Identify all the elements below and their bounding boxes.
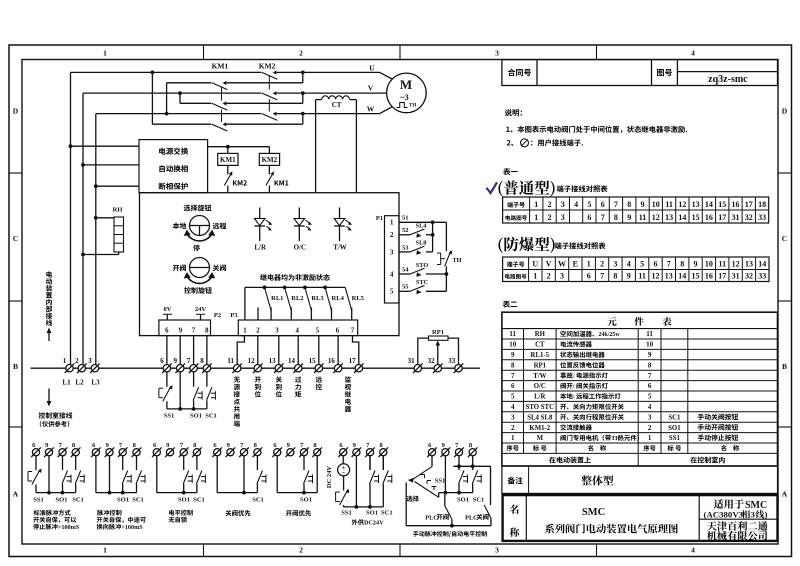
svg-text:12: 12 xyxy=(652,213,660,222)
svg-text:2: 2 xyxy=(299,545,303,554)
svg-text:2: 2 xyxy=(648,424,652,432)
svg-text:L/R: L/R xyxy=(254,244,267,252)
svg-text:52: 52 xyxy=(402,227,409,234)
svg-text:11: 11 xyxy=(227,357,234,365)
svg-text:W: W xyxy=(367,104,375,113)
svg-text:SC1: SC1 xyxy=(473,497,485,504)
svg-text:7: 7 xyxy=(600,272,604,281)
svg-text:D: D xyxy=(782,107,788,116)
svg-text:RL1-5: RL1-5 xyxy=(531,352,550,359)
svg-text:STO: STO xyxy=(416,262,428,269)
svg-text:6: 6 xyxy=(336,327,340,334)
svg-text:10: 10 xyxy=(509,341,517,349)
svg-text:4: 4 xyxy=(648,403,652,411)
svg-text:M: M xyxy=(537,435,544,442)
svg-text:3: 3 xyxy=(275,327,279,334)
svg-text:SO1: SO1 xyxy=(178,497,190,504)
svg-text:3: 3 xyxy=(495,49,499,58)
svg-text:SC1: SC1 xyxy=(668,414,681,421)
svg-text:9: 9 xyxy=(511,351,515,359)
svg-text:SC1: SC1 xyxy=(381,510,393,517)
svg-text:DC24V: DC24V xyxy=(364,520,384,527)
svg-text:KM1: KM1 xyxy=(220,156,236,164)
svg-text:9: 9 xyxy=(694,260,698,269)
svg-text:16: 16 xyxy=(705,272,713,281)
svg-text:9: 9 xyxy=(179,327,183,334)
svg-text:(AC380V3: (AC380V3 xyxy=(704,510,744,520)
svg-text:6: 6 xyxy=(165,327,169,334)
svg-text:SL4 SL8: SL4 SL8 xyxy=(527,414,553,421)
svg-text:5: 5 xyxy=(640,260,644,269)
svg-text:14: 14 xyxy=(705,200,713,209)
svg-text:7: 7 xyxy=(614,200,618,209)
svg-text:M: M xyxy=(400,77,412,92)
svg-text:KM2: KM2 xyxy=(259,62,276,71)
svg-text:E: E xyxy=(573,260,578,269)
svg-text:SO1: SO1 xyxy=(366,510,378,517)
svg-text:2: 2 xyxy=(299,49,303,58)
svg-text:14: 14 xyxy=(758,260,766,269)
svg-text:32: 32 xyxy=(745,272,753,281)
svg-text:15: 15 xyxy=(309,357,317,365)
svg-text:24V: 24V xyxy=(195,306,207,313)
svg-text:4: 4 xyxy=(691,49,695,58)
svg-text:W: W xyxy=(558,260,566,269)
svg-text:7: 7 xyxy=(667,260,671,269)
svg-text:9: 9 xyxy=(641,200,645,209)
svg-text:11: 11 xyxy=(646,330,653,338)
svg-text:32: 32 xyxy=(745,213,753,222)
svg-text:O/C: O/C xyxy=(534,383,546,390)
svg-text:5: 5 xyxy=(390,289,394,296)
svg-text:TH: TH xyxy=(409,104,416,109)
svg-text:1: 1 xyxy=(511,434,515,442)
svg-text:9: 9 xyxy=(627,272,631,281)
svg-text:3: 3 xyxy=(561,213,565,222)
svg-text:17: 17 xyxy=(349,357,357,365)
svg-text:RP1: RP1 xyxy=(534,362,547,369)
svg-text:KM1-2: KM1-2 xyxy=(529,425,550,432)
svg-text:4: 4 xyxy=(390,271,394,278)
svg-text:/: / xyxy=(572,395,575,401)
svg-text:SO1: SO1 xyxy=(300,497,312,504)
svg-text:13: 13 xyxy=(665,213,673,222)
svg-text:8: 8 xyxy=(648,361,652,369)
svg-text:11: 11 xyxy=(638,272,646,281)
svg-text:0V: 0V xyxy=(164,306,172,313)
svg-text:RH: RH xyxy=(535,331,546,338)
svg-text:-: - xyxy=(342,468,345,477)
svg-text:SS1: SS1 xyxy=(33,497,43,504)
svg-text:RL1: RL1 xyxy=(271,295,283,302)
svg-text:B: B xyxy=(782,362,787,371)
svg-text:11: 11 xyxy=(639,213,647,222)
svg-text:7: 7 xyxy=(351,327,355,334)
svg-text:31: 31 xyxy=(408,357,416,365)
svg-text:KM2: KM2 xyxy=(262,156,278,164)
svg-text:A: A xyxy=(13,490,19,499)
svg-text:RL5: RL5 xyxy=(352,295,365,302)
svg-text:4: 4 xyxy=(627,260,631,269)
svg-text:P3: P3 xyxy=(230,312,238,319)
svg-text:SS1: SS1 xyxy=(341,510,351,517)
svg-text:1: 1 xyxy=(534,200,538,209)
svg-text:53: 53 xyxy=(402,244,409,251)
svg-text:32: 32 xyxy=(428,357,436,365)
svg-text:RH: RH xyxy=(113,207,123,214)
svg-text:14: 14 xyxy=(288,357,296,365)
svg-text:RL4: RL4 xyxy=(332,295,345,302)
svg-text:2: 2 xyxy=(390,232,394,239)
svg-text:6: 6 xyxy=(601,200,605,209)
svg-text:3: 3 xyxy=(560,272,564,281)
svg-text:C: C xyxy=(13,234,18,243)
svg-text:8: 8 xyxy=(200,357,204,365)
svg-text:8: 8 xyxy=(627,200,631,209)
svg-text:1: 1 xyxy=(533,272,537,281)
svg-text:3: 3 xyxy=(88,357,92,365)
svg-text:8: 8 xyxy=(613,272,617,281)
svg-text:33: 33 xyxy=(758,272,766,281)
svg-text:T/W: T/W xyxy=(333,244,347,252)
svg-text:KM1: KM1 xyxy=(212,62,229,71)
svg-text:O/C: O/C xyxy=(294,244,306,252)
svg-text:L/R: L/R xyxy=(534,394,545,401)
svg-text:11: 11 xyxy=(719,260,727,269)
svg-text:U: U xyxy=(369,63,375,72)
svg-text:CT: CT xyxy=(332,101,342,109)
svg-text:5: 5 xyxy=(587,200,591,209)
svg-text:PLC: PLC xyxy=(425,514,438,521)
svg-text:D: D xyxy=(13,107,19,116)
svg-text:12: 12 xyxy=(248,357,256,365)
svg-text:PLC: PLC xyxy=(465,514,478,521)
svg-text:2: 2 xyxy=(547,272,551,281)
svg-text:STC: STC xyxy=(416,279,428,286)
svg-text:24k/25w: 24k/25w xyxy=(598,332,620,338)
svg-text:): ) xyxy=(765,510,768,520)
svg-text:13: 13 xyxy=(665,272,673,281)
svg-text:A: A xyxy=(782,490,788,499)
svg-text:9: 9 xyxy=(174,357,178,365)
svg-text:SO1: SO1 xyxy=(56,497,68,504)
svg-text:54: 54 xyxy=(402,266,409,273)
svg-text:SO1: SO1 xyxy=(190,413,202,420)
svg-text:3: 3 xyxy=(390,249,394,256)
svg-text:7: 7 xyxy=(601,213,605,222)
svg-text:4: 4 xyxy=(574,200,578,209)
svg-text:8: 8 xyxy=(205,327,209,334)
svg-text:33: 33 xyxy=(758,213,766,222)
svg-text:1: 1 xyxy=(648,434,652,442)
svg-text:TH: TH xyxy=(453,257,462,264)
svg-text:RL3: RL3 xyxy=(311,295,324,302)
svg-text:V: V xyxy=(546,260,552,269)
svg-text:3: 3 xyxy=(561,200,565,209)
svg-text:L3: L3 xyxy=(91,379,100,387)
svg-text:2: 2 xyxy=(256,327,260,334)
svg-text:SO1: SO1 xyxy=(457,497,469,504)
svg-text:3: 3 xyxy=(751,510,756,520)
svg-text:T/W: T/W xyxy=(533,373,546,380)
svg-text:/: / xyxy=(572,384,575,390)
svg-text:SL8: SL8 xyxy=(416,240,427,247)
svg-text:STO STC: STO STC xyxy=(526,404,554,411)
svg-text:1: 1 xyxy=(103,49,107,58)
svg-text:5: 5 xyxy=(316,327,320,334)
svg-text:6: 6 xyxy=(587,213,591,222)
svg-text:12: 12 xyxy=(678,200,686,209)
svg-text:15: 15 xyxy=(692,272,700,281)
svg-text:>100mS: >100mS xyxy=(121,524,143,531)
svg-text:13: 13 xyxy=(269,357,277,365)
svg-text:U: U xyxy=(532,260,538,269)
svg-text:L2: L2 xyxy=(75,379,84,387)
svg-text:10: 10 xyxy=(705,260,713,269)
svg-text:SC1: SC1 xyxy=(72,497,84,504)
svg-text:3: 3 xyxy=(613,260,617,269)
svg-text:B: B xyxy=(13,362,18,371)
svg-text:2: 2 xyxy=(511,424,515,432)
svg-text:7: 7 xyxy=(187,357,191,365)
svg-text:1: 1 xyxy=(390,220,394,227)
svg-text:4: 4 xyxy=(511,403,515,411)
svg-text:>100mS: >100mS xyxy=(58,524,80,531)
svg-text:10: 10 xyxy=(646,341,654,349)
svg-text:55: 55 xyxy=(402,284,409,291)
svg-text:1: 1 xyxy=(587,260,591,269)
svg-text:17: 17 xyxy=(718,272,726,281)
svg-text:3: 3 xyxy=(495,545,499,554)
svg-text:33: 33 xyxy=(448,357,456,365)
svg-text:SS1: SS1 xyxy=(669,435,681,442)
svg-text:8: 8 xyxy=(614,213,618,222)
svg-text:P1: P1 xyxy=(376,215,383,222)
svg-text:2: 2 xyxy=(75,357,79,365)
svg-text:2: 2 xyxy=(548,213,552,222)
svg-text:CT: CT xyxy=(535,342,545,349)
svg-text:1: 1 xyxy=(534,213,538,222)
svg-text:11: 11 xyxy=(665,200,673,209)
svg-text:16: 16 xyxy=(705,213,713,222)
svg-text:C: C xyxy=(782,234,787,243)
svg-text:13: 13 xyxy=(692,200,700,209)
svg-text:6: 6 xyxy=(654,260,658,269)
svg-text:SS1: SS1 xyxy=(164,413,174,420)
svg-text:51: 51 xyxy=(402,215,409,222)
svg-text:SC1: SC1 xyxy=(132,497,144,504)
svg-text:16: 16 xyxy=(328,357,336,365)
svg-text:18: 18 xyxy=(758,200,766,209)
svg-text:RL2: RL2 xyxy=(291,295,303,302)
svg-text:31: 31 xyxy=(732,213,740,222)
svg-text:SC1: SC1 xyxy=(205,413,217,420)
svg-text:SC1: SC1 xyxy=(252,497,264,504)
svg-text:3: 3 xyxy=(511,413,515,421)
svg-text:P2: P2 xyxy=(214,312,221,319)
svg-text:7: 7 xyxy=(192,327,196,334)
svg-text:1: 1 xyxy=(103,545,107,554)
svg-text:SS1: SS1 xyxy=(435,478,445,485)
svg-text:6: 6 xyxy=(587,272,591,281)
svg-text:~3: ~3 xyxy=(400,93,408,102)
svg-text:12: 12 xyxy=(732,260,740,269)
svg-text:5: 5 xyxy=(511,393,515,401)
svg-text:/: / xyxy=(572,374,575,380)
svg-text:4: 4 xyxy=(691,545,695,554)
svg-text:1: 1 xyxy=(63,357,67,365)
svg-text:RP1: RP1 xyxy=(432,329,444,336)
svg-text:10: 10 xyxy=(652,200,660,209)
svg-text:SMC: SMC xyxy=(582,507,605,518)
svg-text:9: 9 xyxy=(627,213,631,222)
svg-text:8: 8 xyxy=(511,361,515,369)
svg-text:14: 14 xyxy=(678,272,686,281)
svg-text:2: 2 xyxy=(600,260,604,269)
svg-text:13: 13 xyxy=(745,260,753,269)
svg-text:V: V xyxy=(368,84,374,93)
svg-text:6: 6 xyxy=(648,382,652,390)
svg-text:15: 15 xyxy=(718,200,726,209)
svg-text:5: 5 xyxy=(648,393,652,401)
svg-text:6: 6 xyxy=(511,382,515,390)
svg-text:SO1: SO1 xyxy=(117,497,129,504)
svg-text:SO1: SO1 xyxy=(668,425,681,432)
svg-text:7: 7 xyxy=(648,372,652,380)
svg-text:14: 14 xyxy=(678,213,686,222)
svg-text:SC1: SC1 xyxy=(193,497,205,504)
svg-text:2: 2 xyxy=(548,200,552,209)
svg-text:zq3z-smc: zq3z-smc xyxy=(708,74,748,85)
svg-text:L1: L1 xyxy=(62,379,71,387)
svg-text:6: 6 xyxy=(160,357,164,365)
svg-text:8: 8 xyxy=(680,260,684,269)
svg-text:4: 4 xyxy=(295,327,299,334)
svg-text:15: 15 xyxy=(692,213,700,222)
svg-text:17: 17 xyxy=(718,213,726,222)
svg-text:17: 17 xyxy=(745,200,753,209)
svg-text:12: 12 xyxy=(652,272,660,281)
svg-text:3: 3 xyxy=(648,413,652,421)
svg-text:7: 7 xyxy=(511,372,515,380)
svg-text:9: 9 xyxy=(648,351,652,359)
svg-text:SL4: SL4 xyxy=(416,223,427,230)
svg-text:1: 1 xyxy=(243,327,247,334)
svg-text:11: 11 xyxy=(509,330,516,338)
svg-text:DC 24V: DC 24V xyxy=(326,466,333,489)
svg-text:16: 16 xyxy=(732,200,740,209)
svg-text:31: 31 xyxy=(732,272,740,281)
